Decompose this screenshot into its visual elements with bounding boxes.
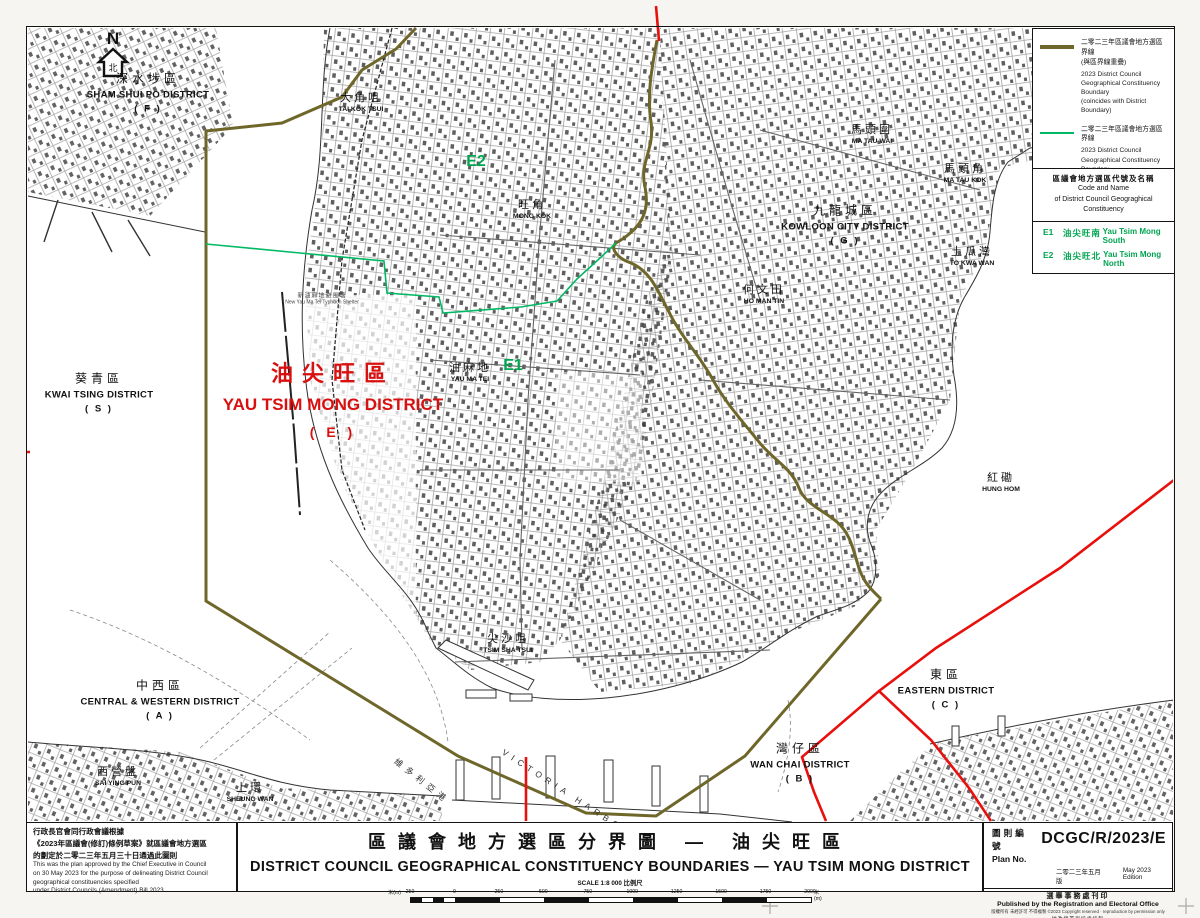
copyright-line: 版權所有 未經許可 不得複製 ©2023 Copyright reserved … <box>984 909 1172 915</box>
map-sheet: N 北 深水埗區SHAM SHUI PO DISTRICT( F )葵青區KWA… <box>0 0 1200 918</box>
code-e2: E2 <box>1043 250 1063 268</box>
code-e2-cn: 油尖旺北 <box>1063 250 1103 268</box>
map-title-en: DISTRICT COUNCIL GEOGRAPHICAL CONSTITUEN… <box>238 859 982 875</box>
code-name-panel: 區議會地方選區代號及名稱 Code and Name of District C… <box>1032 168 1175 274</box>
scale-segments <box>410 897 812 903</box>
pier <box>492 757 500 799</box>
publisher-cn: 選舉事務處刊印 <box>984 891 1172 901</box>
plan-edition-en: May 2023 Edition <box>1123 867 1172 885</box>
legend-item-constituency: 二零二三年區議會地方選區界線 2023 District Council Geo… <box>1040 125 1167 174</box>
approval-text-cn: 行政長官會同行政會議根據 《2023年區議會(修訂)條例草案》就區議會地方選區 … <box>33 826 230 861</box>
code-row-e1: E1 油尖旺南 Yau Tsim Mong South <box>1033 222 1174 245</box>
approval-box: 行政長官會同行政會議根據 《2023年區議會(修訂)條例草案》就區議會地方選區 … <box>26 822 237 892</box>
plan-no-label-en: Plan No. <box>992 853 1031 866</box>
code-e1-cn: 油尖旺南 <box>1063 227 1103 245</box>
code-name-header-cn: 區議會地方選區代號及名稱 <box>1035 173 1172 184</box>
pier <box>652 766 660 806</box>
kings-park-area <box>556 372 642 482</box>
pier <box>510 694 532 701</box>
code-e2-en: Yau Tsim Mong North <box>1103 250 1166 268</box>
map-title-cn: 區議會地方選區分界圖 — 油尖旺區 <box>238 828 982 854</box>
map-canvas <box>0 0 1200 918</box>
legend-constituency-cn: 二零二三年區議會地方選區界線 <box>1081 125 1167 145</box>
scale-bar: 250025050075010001250150017502000米(m)米(m… <box>390 889 830 905</box>
north-letter: N <box>96 30 130 47</box>
code-name-header-en1: Code and Name <box>1035 184 1172 195</box>
plan-edition-cn: 二零二三年五月版 <box>1056 867 1107 885</box>
plan-number: DCGC/R/2023/E <box>1041 830 1166 866</box>
plan-edition-row: 二零二三年五月版 May 2023 Edition <box>1056 867 1172 885</box>
code-e1-en: Yau Tsim Mong South <box>1103 227 1166 245</box>
svg-text:北: 北 <box>108 63 117 73</box>
legend-swatch-constituency <box>1040 132 1074 134</box>
legend-coincide-cn: 二零二三年區議會地方選區界線 (與區界線重疊) <box>1081 38 1167 68</box>
north-arrow: N 北 <box>96 30 130 84</box>
legend-coincide-en: 2023 District Council Geographical Const… <box>1081 70 1167 116</box>
code-name-header: 區議會地方選區代號及名稱 Code and Name of District C… <box>1033 169 1174 222</box>
reclamation-area <box>300 295 416 625</box>
plan-no-label-cn: 圖則編號 <box>992 827 1031 853</box>
pier <box>456 760 464 800</box>
plan-number-row: 圖則編號 Plan No. DCGC/R/2023/E <box>984 823 1172 866</box>
code-e1: E1 <box>1043 227 1063 245</box>
code-name-header-en2: of District Council Geograghical Constit… <box>1035 195 1172 216</box>
publisher-en: Published by the Registration and Electo… <box>984 901 1172 908</box>
pier <box>998 716 1005 736</box>
north-arrow-icon: 北 <box>96 47 130 79</box>
legend-item-coincide: 二零二三年區議會地方選區界線 (與區界線重疊) 2023 District Co… <box>1040 38 1167 116</box>
title-box: 區議會地方選區分界圖 — 油尖旺區 DISTRICT COUNCIL GEOGR… <box>237 822 983 892</box>
publisher-block: 選舉事務處刊印 Published by the Registration an… <box>984 888 1172 918</box>
scale-ticks: 250025050075010001250150017502000米(m)米(m… <box>410 889 810 896</box>
legend-panel: 二零二三年區議會地方選區界線 (與區界線重疊) 2023 District Co… <box>1032 28 1175 170</box>
pier <box>604 760 613 802</box>
code-row-e2: E2 油尖旺北 Yau Tsim Mong North <box>1033 245 1174 268</box>
approval-text-en: This was the plan approved by the Chief … <box>33 861 230 896</box>
pier <box>546 756 555 798</box>
pier <box>952 726 959 746</box>
legend-swatch-coincide <box>1040 45 1074 49</box>
pier <box>466 690 496 698</box>
scale-label: SCALE 1:8 000 比例尺 <box>238 878 982 887</box>
plan-number-box: 圖則編號 Plan No. DCGC/R/2023/E 二零二三年五月版 May… <box>983 822 1173 892</box>
